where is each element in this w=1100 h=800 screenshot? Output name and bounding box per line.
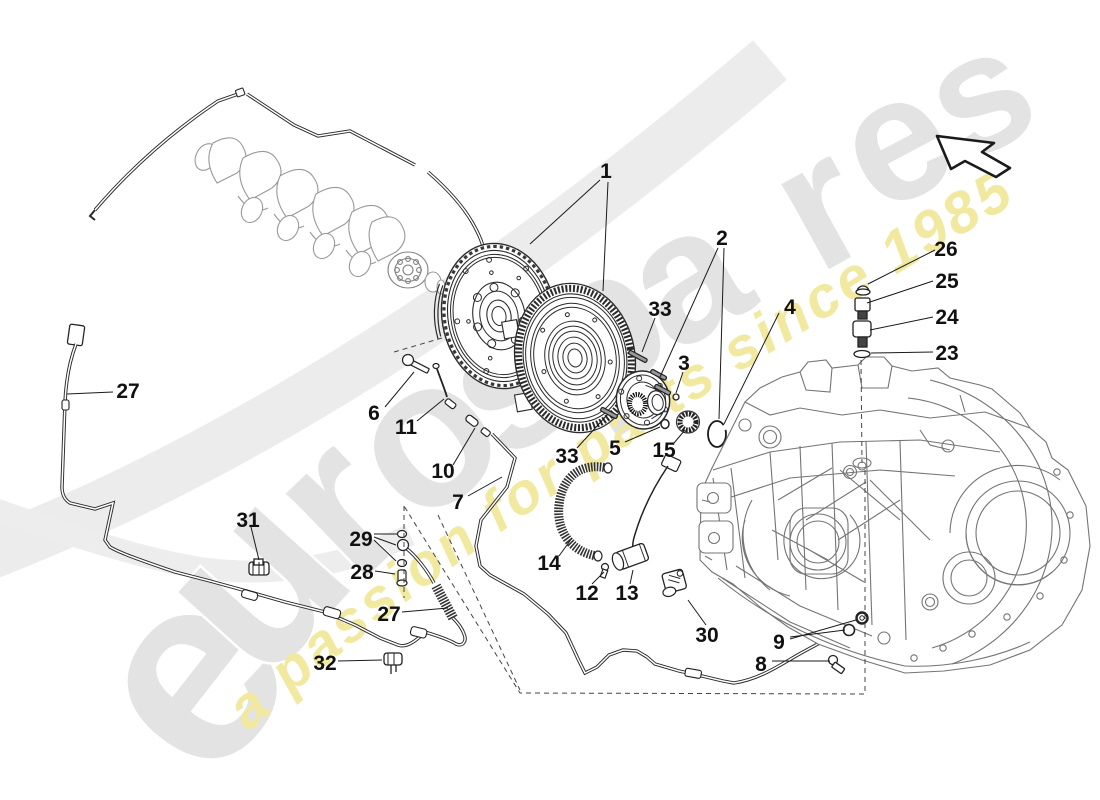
svg-text:29: 29 bbox=[349, 528, 372, 551]
svg-text:33: 33 bbox=[555, 445, 578, 468]
svg-text:23: 23 bbox=[935, 342, 958, 365]
svg-text:7: 7 bbox=[452, 491, 464, 514]
svg-text:3: 3 bbox=[678, 352, 690, 375]
svg-text:5: 5 bbox=[609, 437, 621, 460]
svg-text:12: 12 bbox=[575, 582, 598, 605]
svg-text:1: 1 bbox=[600, 160, 612, 183]
svg-text:4: 4 bbox=[784, 296, 796, 319]
svg-text:6: 6 bbox=[368, 402, 380, 425]
svg-text:10: 10 bbox=[431, 460, 454, 483]
svg-text:30: 30 bbox=[695, 624, 718, 647]
svg-text:13: 13 bbox=[615, 582, 638, 605]
svg-text:14: 14 bbox=[537, 552, 561, 575]
svg-text:9: 9 bbox=[773, 631, 785, 654]
svg-text:11: 11 bbox=[395, 416, 418, 439]
svg-text:25: 25 bbox=[935, 270, 959, 293]
svg-text:15: 15 bbox=[652, 439, 676, 462]
svg-text:31: 31 bbox=[236, 509, 260, 532]
svg-text:26: 26 bbox=[934, 238, 957, 261]
svg-text:33: 33 bbox=[648, 298, 671, 321]
svg-text:8: 8 bbox=[755, 653, 767, 676]
svg-text:24: 24 bbox=[935, 306, 959, 329]
svg-text:32: 32 bbox=[313, 652, 336, 675]
svg-text:27: 27 bbox=[377, 603, 400, 626]
svg-text:28: 28 bbox=[350, 561, 374, 584]
svg-text:2: 2 bbox=[716, 227, 728, 250]
svg-text:27: 27 bbox=[116, 380, 139, 403]
